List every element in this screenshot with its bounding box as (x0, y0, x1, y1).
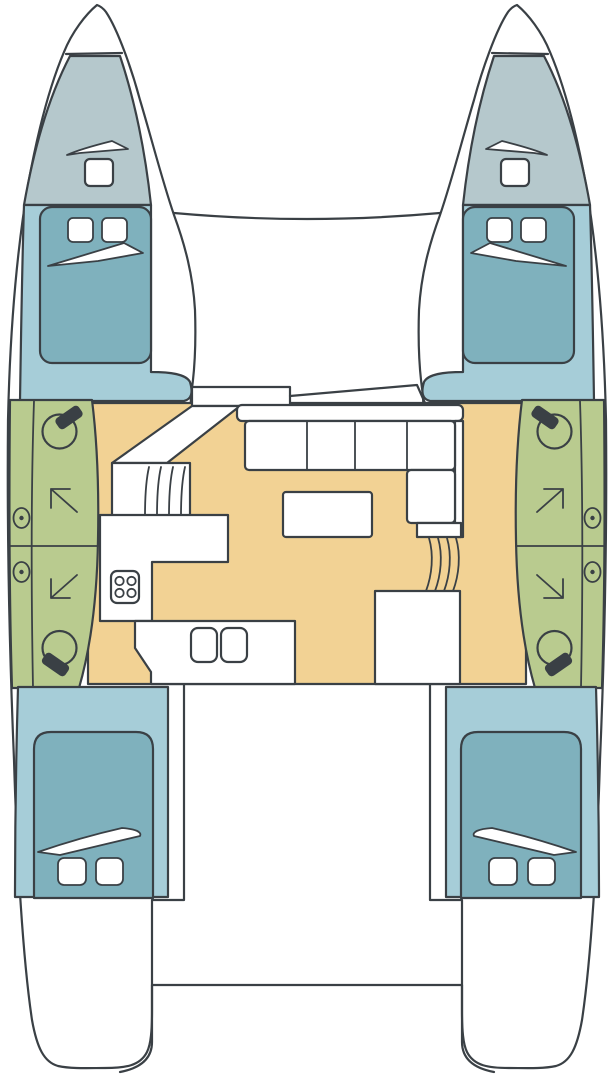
floorplan-canvas (0, 0, 614, 1080)
salon-table (283, 492, 372, 537)
settee-corner-seat (407, 470, 455, 523)
companionway-entry (192, 387, 290, 406)
port-forward-pillow-1 (68, 218, 93, 242)
port-aft-pillow-2 (96, 858, 123, 885)
starboard-aft-pillow-1 (489, 858, 517, 885)
trampoline-crossbeam-line (174, 213, 440, 219)
port-head (9, 400, 98, 688)
starboard-porthole-1-dot (590, 516, 594, 520)
starboard-aft-bed (461, 732, 581, 898)
starboard-head-area (516, 400, 605, 688)
starboard-bow-locker-line (492, 53, 548, 54)
starboard-aft-pillow-2 (528, 858, 555, 885)
starboard-forward-pillow-1 (487, 218, 512, 242)
settee-seat-row (245, 421, 455, 470)
starboard-porthole-2-dot (590, 570, 594, 574)
port-stairs (112, 463, 190, 516)
starboard-forward-pillow-2 (521, 218, 546, 242)
port-stairs-box (112, 463, 190, 516)
starboard-forward-bed (463, 207, 574, 363)
aft-counter-block (375, 591, 460, 684)
catamaran-floorplan-page (0, 0, 614, 1080)
stern-platform (120, 985, 494, 1072)
port-forward-bed (40, 207, 151, 363)
port-porthole-2-dot (19, 570, 23, 574)
port-aft-bed (34, 732, 153, 898)
starboard-head (516, 400, 605, 688)
port-deck-hatch-icon (85, 159, 113, 186)
starboard-deck-hatch-icon (501, 159, 529, 186)
port-porthole-1-dot (19, 516, 23, 520)
settee-return-step (417, 523, 461, 537)
port-bow-locker-line (66, 53, 122, 54)
sink-bowl-1-icon (191, 628, 217, 662)
settee-backrest (237, 405, 463, 421)
port-forward-pillow-2 (102, 218, 127, 242)
sink-bowl-2-icon (221, 628, 247, 662)
port-head-area (9, 400, 98, 688)
settee-backrest-side (455, 421, 463, 537)
coachroof-front-line (290, 385, 425, 403)
port-aft-pillow-1 (58, 858, 86, 885)
stove-icon (111, 571, 139, 603)
